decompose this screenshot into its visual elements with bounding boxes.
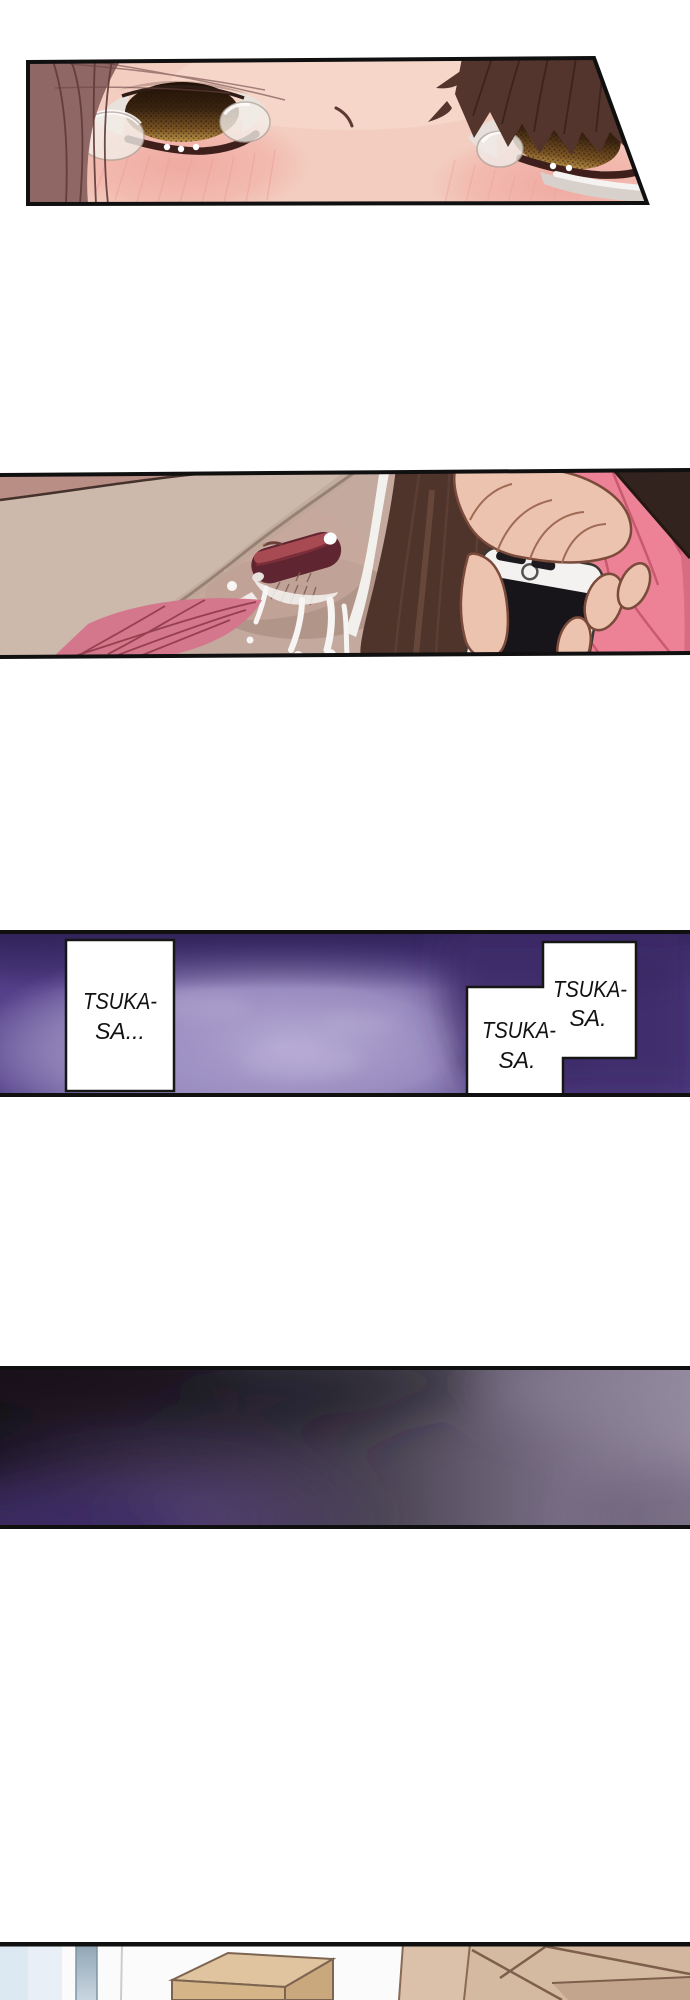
svg-text:TSUKA-: TSUKA- [83, 988, 157, 1014]
svg-text:TSUKA-: TSUKA- [553, 976, 627, 1002]
svg-text:SA.: SA. [569, 1005, 606, 1031]
svg-text:SA...: SA... [95, 1018, 145, 1044]
svg-text:TSUKA-: TSUKA- [482, 1017, 556, 1043]
svg-text:SA.: SA. [498, 1047, 535, 1073]
